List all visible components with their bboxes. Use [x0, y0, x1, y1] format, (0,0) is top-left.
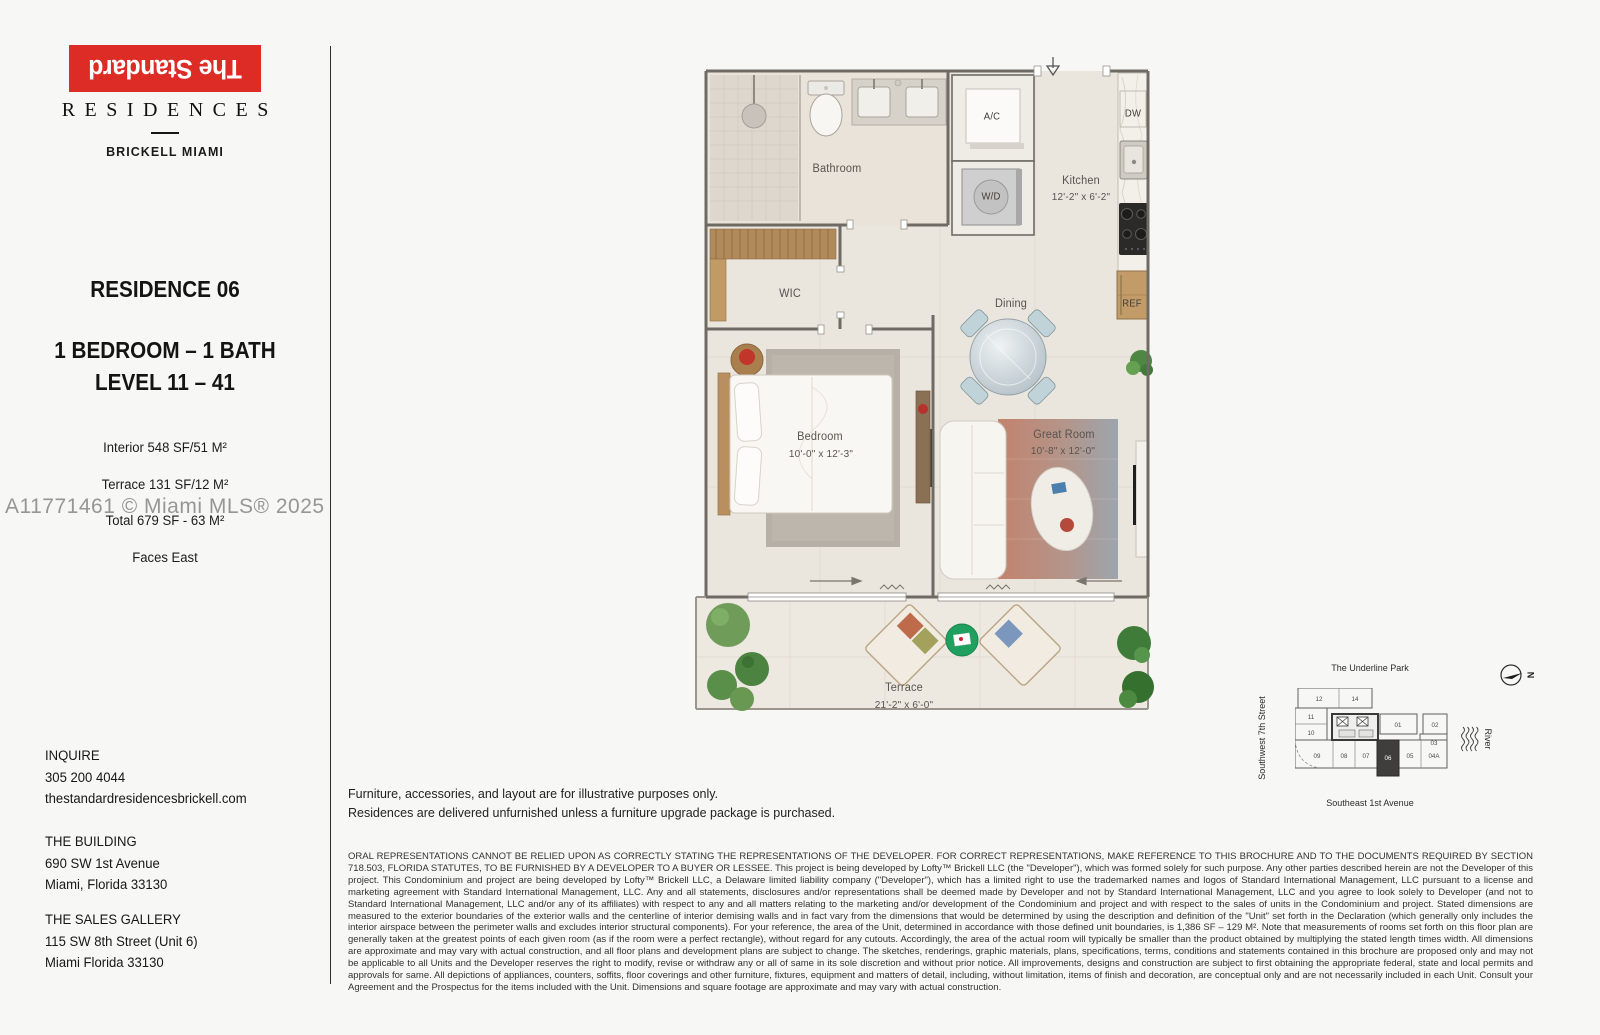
terrace-dimensions: 21'-2" x 6'-0" — [875, 699, 933, 711]
room-label-great-room: Great Room — [1033, 429, 1094, 441]
svg-text:10: 10 — [1308, 730, 1315, 737]
svg-text:N: N — [1526, 672, 1536, 679]
key-plan: The Underline Park Southwest 7th Street … — [1240, 646, 1540, 826]
north-compass-icon: N — [1498, 662, 1538, 688]
left-column: The Standard RESIDENCES BRICKELL MIAMI R… — [0, 0, 330, 1035]
brand-logo: The Standard — [69, 45, 261, 92]
brand-residences-label: RESIDENCES — [0, 99, 330, 122]
terrace-area: Terrace 131 SF/12 M² — [5, 477, 325, 492]
svg-text:06: 06 — [1385, 755, 1392, 762]
sofa-icon — [940, 421, 1006, 579]
room-label-bathroom: Bathroom — [813, 163, 862, 175]
svg-text:01: 01 — [1395, 722, 1402, 729]
refrigerator-icon — [1117, 271, 1148, 319]
inquire-label: INQUIRE — [45, 745, 247, 767]
bedroom-dimensions: 10'-0" x 12'-3" — [789, 448, 853, 460]
room-label-dining: Dining — [995, 298, 1027, 310]
svg-text:11: 11 — [1308, 714, 1315, 721]
kitchen-dimensions: 12'-2" x 6'-2" — [1052, 191, 1110, 203]
vanity-double-sink — [852, 79, 946, 125]
logo-divider-rule — [151, 132, 179, 134]
toilet-icon — [808, 81, 844, 136]
furnishing-note: Furniture, accessories, and layout are f… — [348, 785, 835, 822]
room-label-wd: W/D — [981, 192, 1000, 203]
building-label: THE BUILDING — [45, 831, 167, 853]
tv-icon — [1133, 465, 1136, 525]
great-room-dimensions: 10'-8" x 12'-0" — [1031, 445, 1095, 457]
river-label: River — [1483, 728, 1493, 749]
svg-text:12: 12 — [1316, 696, 1323, 703]
svg-text:03: 03 — [1431, 740, 1438, 747]
interior-area: Interior 548 SF/51 M² — [5, 440, 325, 455]
furnishing-note-line1: Furniture, accessories, and layout are f… — [348, 785, 835, 804]
sales-gallery-block: THE SALES GALLERY 115 SW 8th Street (Uni… — [45, 909, 202, 974]
vertical-divider — [330, 46, 331, 984]
gallery-address-2: Miami Florida 33130 — [45, 952, 198, 974]
shower-head-icon — [742, 104, 766, 128]
terrace-pouf — [946, 624, 978, 656]
elevator-core — [1332, 714, 1378, 740]
room-label-bedroom: Bedroom — [797, 431, 843, 443]
svg-text:07: 07 — [1363, 753, 1370, 760]
gallery-label: THE SALES GALLERY — [45, 909, 198, 931]
building-address-2: Miami, Florida 33130 — [45, 874, 167, 896]
svg-text:04A: 04A — [1428, 753, 1440, 760]
room-label-kitchen: Kitchen — [1062, 175, 1100, 187]
sw-7th-street-label: Southwest 7th Street — [1257, 696, 1267, 780]
svg-text:08: 08 — [1341, 753, 1348, 760]
headboard — [718, 373, 730, 515]
phone-number: 305 200 4044 — [45, 767, 247, 789]
mls-watermark: A11771461 © Miami MLS® 2025 — [5, 495, 325, 519]
dining-table-set — [959, 308, 1057, 406]
brand-location-label: BRICKELL MIAMI — [7, 144, 324, 159]
building-block: THE BUILDING 690 SW 1st Avenue Miami, Fl… — [45, 831, 171, 896]
inquire-block: INQUIRE 305 200 4044 thestandardresidenc… — [45, 745, 253, 810]
room-label-ac: A/C — [984, 112, 1000, 123]
underline-park-label: The Underline Park — [1240, 663, 1500, 673]
kitchen-sink-icon — [1120, 141, 1147, 179]
level-range: LEVEL 11 – 41 — [20, 369, 310, 396]
svg-text:14: 14 — [1352, 696, 1359, 703]
brochure-page: The Standard RESIDENCES BRICKELL MIAMI R… — [0, 0, 1600, 1035]
river-waves-icon — [1461, 726, 1479, 752]
legal-disclaimer: ORAL REPRESENTATIONS CANNOT BE RELIED UP… — [348, 851, 1533, 994]
cooktop-icon — [1119, 203, 1149, 255]
floor-plan: Bathroom A/C W/D DW Kitchen 12'-2" x 6'-… — [690, 57, 1156, 715]
room-label-ref: REF — [1122, 299, 1142, 310]
svg-text:09: 09 — [1314, 753, 1321, 760]
bathroom-zone — [706, 71, 948, 225]
brand-logo-text: The Standard — [88, 53, 241, 84]
furnishing-note-line2: Residences are delivered unfurnished unl… — [348, 804, 835, 823]
svg-text:02: 02 — [1432, 722, 1439, 729]
se-1st-avenue-label: Southeast 1st Avenue — [1240, 798, 1500, 808]
residence-title: RESIDENCE 06 — [20, 276, 310, 303]
building-footprint: 12 14 11 10 01 02 03 09 08 07 06 05 04A — [1295, 688, 1453, 784]
faces-direction: Faces East — [5, 550, 325, 565]
svg-text:05: 05 — [1407, 753, 1414, 760]
room-label-wic: WIC — [779, 288, 801, 300]
tv-console — [1136, 441, 1148, 557]
bedroom-dresser — [916, 391, 932, 503]
floor-plan-drawing — [690, 57, 1156, 715]
room-label-dw: DW — [1125, 109, 1141, 120]
bed-bath-config: 1 BEDROOM – 1 BATH — [20, 337, 310, 364]
website-url: thestandardresidencesbrickell.com — [45, 788, 247, 810]
building-address-1: 690 SW 1st Avenue — [45, 853, 167, 875]
room-label-terrace: Terrace — [885, 682, 923, 694]
gallery-address-1: 115 SW 8th Street (Unit 6) — [45, 931, 198, 953]
